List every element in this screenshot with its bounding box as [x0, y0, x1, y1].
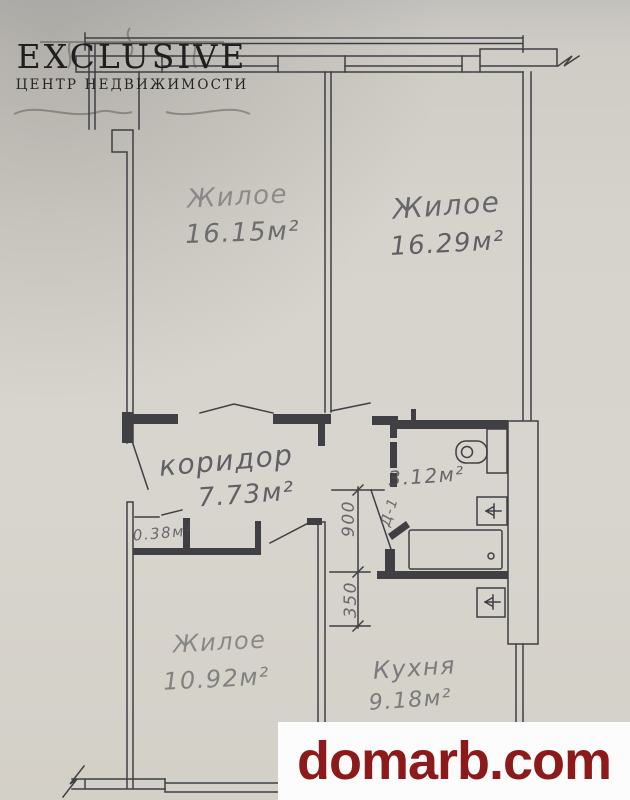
door-swing-living-3	[270, 519, 316, 543]
vent-duct-2-icon	[477, 588, 505, 617]
room-label-living-1: Жилое	[184, 179, 288, 214]
door-tag-d1: Д-1	[377, 495, 402, 529]
room-label-living-2: Жилое	[389, 185, 501, 226]
vent-duct-1-icon	[477, 497, 507, 525]
room-area-living-2: 16.29м²	[389, 226, 505, 262]
fixtures	[409, 429, 507, 617]
door-mark-living-2	[331, 403, 370, 411]
room-label-living-3: Жилое	[170, 626, 267, 659]
agency-name: EXCLUSIVE	[10, 40, 254, 75]
dimension-label-350: 350	[341, 581, 361, 618]
room-area-corridor: 7.73м²	[197, 477, 296, 514]
room-kitchen-divider	[318, 522, 325, 723]
room-label-corridor: коридор	[158, 438, 295, 483]
wall-break-top	[558, 56, 579, 66]
room-area-living-3: 10.92м²	[162, 662, 270, 696]
room-area-bathroom: 3.12м²	[387, 461, 465, 490]
floorplan-photo: Жилое 16.15м² Жилое 16.29м² коридор 7.73…	[0, 0, 630, 800]
closet-door-dashes	[135, 510, 182, 517]
room-area-kitchen: 9.18м²	[368, 685, 453, 716]
bathtub-icon	[409, 530, 502, 569]
door-swing-left	[133, 444, 148, 489]
wall-break-bottom	[63, 766, 84, 797]
room-label-kitchen: Кухня	[372, 651, 457, 685]
dimension-label-900: 900	[339, 500, 359, 537]
interior-walls	[122, 409, 508, 579]
door-mark-living-1	[200, 404, 273, 413]
site-watermark: domarb.com	[297, 730, 611, 792]
agency-tagline: ЦЕНТР НЕДВИЖИМОСТИ	[10, 77, 254, 93]
watermark-band: domarb.com	[278, 722, 630, 800]
shaft-walls	[508, 421, 538, 723]
agency-logo: EXCLUSIVE ЦЕНТР НЕДВИЖИМОСТИ	[10, 40, 254, 93]
room-area-living-1: 16.15м²	[185, 216, 301, 250]
